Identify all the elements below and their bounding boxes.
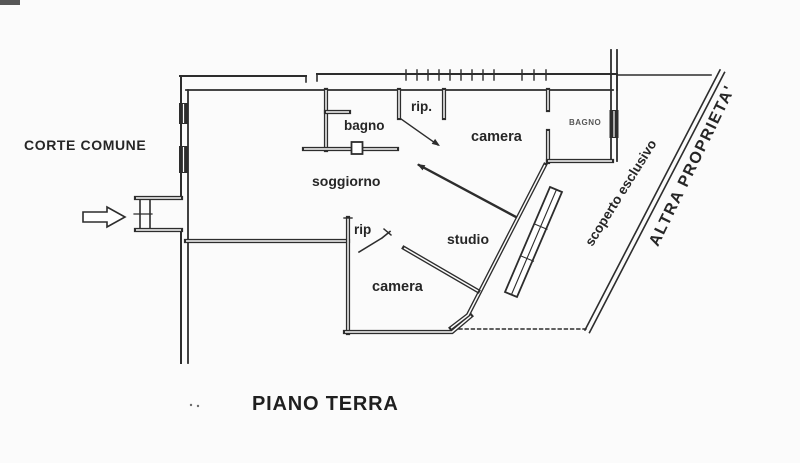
label-corte-comune: CORTE COMUNE bbox=[24, 138, 146, 152]
entrance-vestibule bbox=[134, 198, 181, 230]
label-bagno-top: bagno bbox=[344, 119, 385, 133]
label-rip-bottom: rip bbox=[354, 223, 371, 237]
label-bagno-right: BAGNO bbox=[569, 119, 601, 127]
scan-artifacts bbox=[0, 0, 199, 407]
label-rip-top: rip. bbox=[411, 100, 432, 114]
bagno-fixture-square bbox=[352, 142, 363, 154]
label-camera-bottom: camera bbox=[372, 280, 423, 295]
label-soggiorno: soggiorno bbox=[312, 174, 380, 188]
floor-plan-page: CORTE COMUNE bagno rip. camera BAGNO sog… bbox=[0, 0, 800, 463]
studio-glass-wall-window bbox=[505, 187, 562, 297]
label-camera-top: camera bbox=[471, 130, 522, 145]
entrance-arrow-icon bbox=[83, 207, 125, 227]
page-title: PIANO TERRA bbox=[252, 394, 399, 414]
label-studio: studio bbox=[447, 232, 489, 246]
floor-plan-drawing bbox=[0, 0, 800, 463]
